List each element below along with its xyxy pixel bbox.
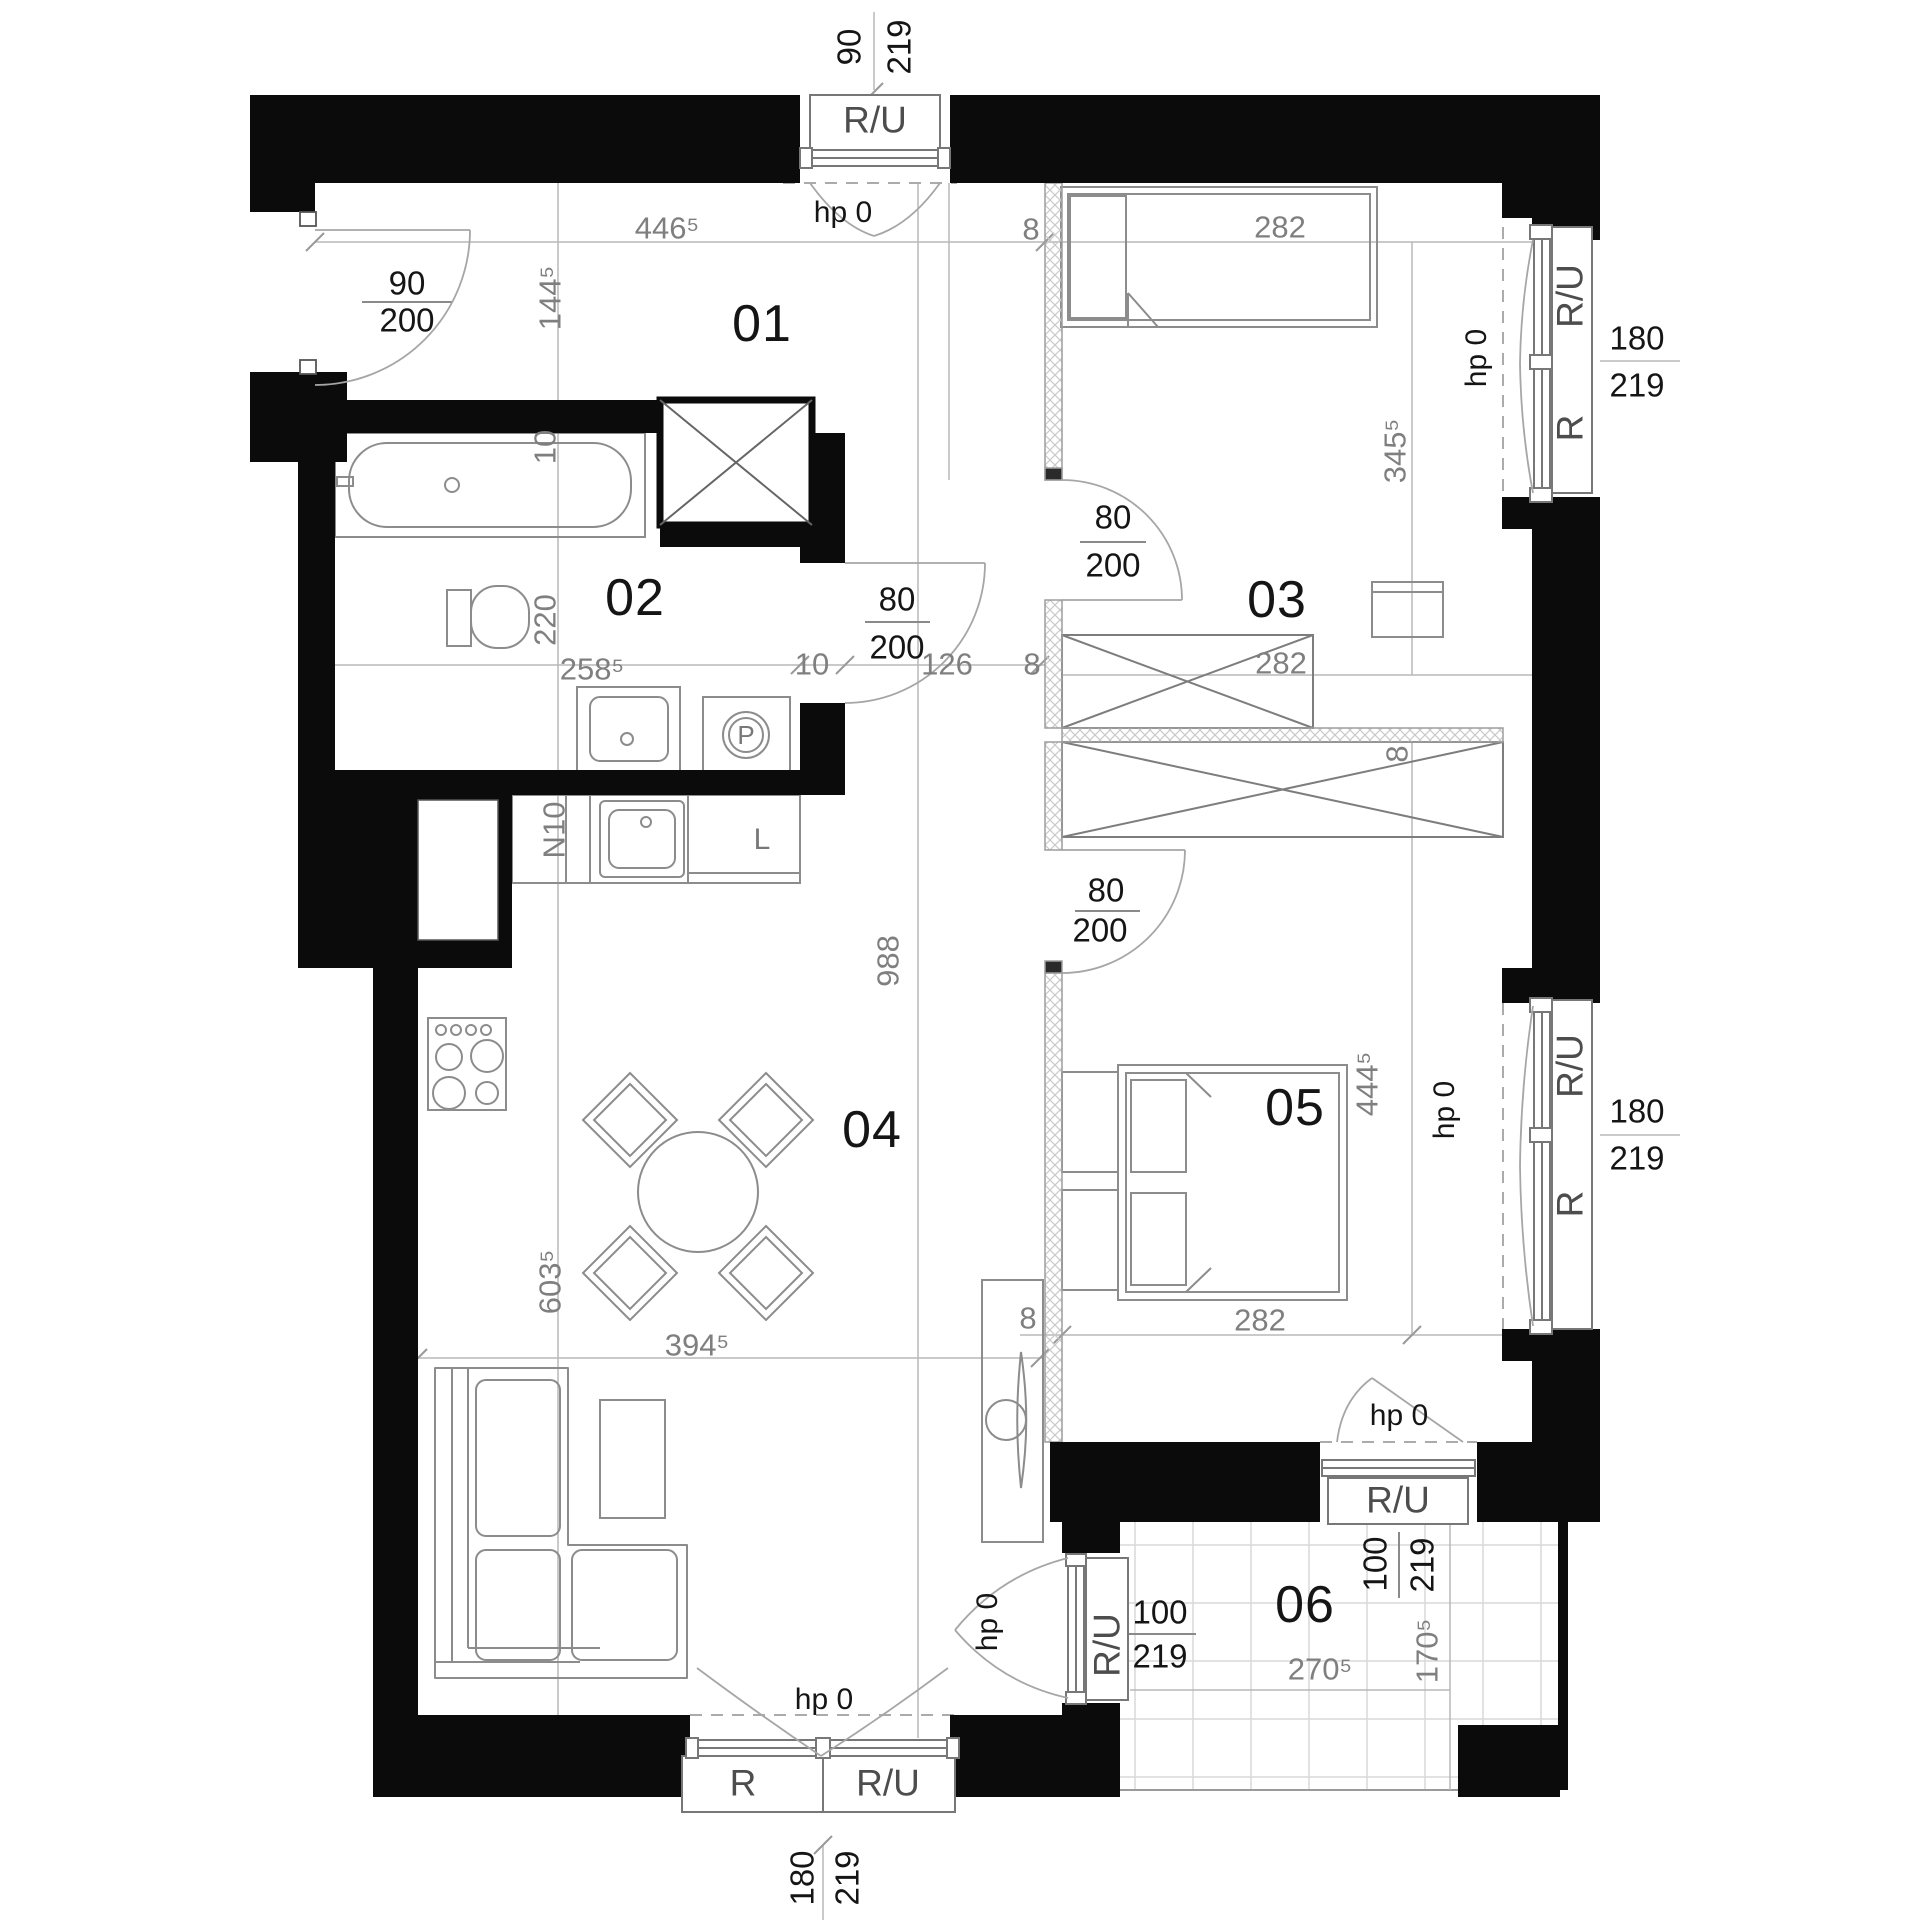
size-door03-200: 200 xyxy=(1085,549,1140,582)
wall-room56-right xyxy=(1477,1442,1532,1522)
wall-terrace-left-top xyxy=(1062,1483,1120,1553)
stove xyxy=(428,1018,506,1110)
wall-terrace-left-bottom xyxy=(1062,1703,1120,1797)
wall-bottom-left xyxy=(373,1715,690,1797)
size-botwin-219: 219 xyxy=(831,1850,864,1905)
toilet xyxy=(447,586,529,648)
wall-top-right xyxy=(950,95,1600,183)
win-right2-ru: R/U xyxy=(1552,1034,1589,1098)
hp-door56: hp 0 xyxy=(1370,1401,1428,1431)
size-entry-200: 200 xyxy=(379,304,434,337)
win-right1-r: R xyxy=(1552,415,1589,442)
wall-win1-nub-top xyxy=(1502,183,1532,218)
wall-bath-right-lower xyxy=(800,703,845,795)
room-04-label: 04 xyxy=(842,1104,902,1156)
size-rwin2-219: 219 xyxy=(1609,1142,1664,1175)
hp-door46: hp 0 xyxy=(973,1593,1003,1651)
win-top-ru: R/U xyxy=(843,102,907,139)
win-bottom-r: R xyxy=(730,1765,757,1802)
room-02-label: 02 xyxy=(605,572,665,624)
dim-282-bed03: 282 xyxy=(1254,212,1306,243)
dim-144-5: 144⁵ xyxy=(535,266,566,331)
hp-window03: hp 0 xyxy=(1462,329,1492,387)
dim-n10: N10 xyxy=(539,802,570,859)
size-topwin-219: 219 xyxy=(883,19,916,74)
wall-bath-bottom xyxy=(335,770,800,795)
size-door46-219: 219 xyxy=(1132,1640,1187,1673)
entry-door xyxy=(300,212,470,385)
dim-603-5: 603⁵ xyxy=(535,1250,566,1315)
wardrobe-room05 xyxy=(1062,742,1503,837)
dim-988: 988 xyxy=(873,935,904,987)
dim-282-bed05: 282 xyxy=(1234,1305,1286,1336)
dim-270-5: 270⁵ xyxy=(1288,1654,1353,1685)
win-right2-r: R xyxy=(1552,1191,1589,1218)
coffee-table xyxy=(600,1400,665,1518)
size-entry-90: 90 xyxy=(389,267,426,300)
dim-345-5: 345⁵ xyxy=(1380,419,1411,484)
dim-444-5: 444⁵ xyxy=(1352,1052,1383,1117)
hp-top-window: hp 0 xyxy=(814,198,872,228)
dim-8-bed05: 8 xyxy=(1019,1303,1036,1334)
wall-bath-top xyxy=(315,400,660,433)
win-bottom-ru: R/U xyxy=(856,1765,920,1802)
room-06-label: 06 xyxy=(1275,1579,1335,1631)
size-rwin2-180: 180 xyxy=(1609,1095,1664,1128)
dim-126: 126 xyxy=(921,649,973,680)
wall-top-left xyxy=(250,95,800,183)
size-botwin-180: 180 xyxy=(786,1850,819,1905)
win-door46-ru: R/U xyxy=(1089,1613,1126,1677)
dining-table xyxy=(583,1073,813,1320)
ventilation-shaft xyxy=(660,400,812,525)
wall-win1-nub-bottom xyxy=(1502,497,1532,529)
bathroom-sink xyxy=(577,687,680,773)
floor-plan-drawing xyxy=(0,0,1922,1922)
size-door56-219: 219 xyxy=(1406,1537,1439,1592)
floor-plan: 010203040506446⁵8282144⁵345⁵10220258⁵101… xyxy=(0,0,1922,1922)
size-rwin1-219: 219 xyxy=(1609,369,1664,402)
size-door46-100: 100 xyxy=(1132,1596,1187,1629)
dim-10-tub: 10 xyxy=(530,430,561,464)
dim-220: 220 xyxy=(530,594,561,646)
partition-walls xyxy=(1045,183,1503,1442)
wall-bottom-mid xyxy=(950,1715,1062,1797)
wall-right-mid xyxy=(1532,497,1600,1003)
size-door05-80: 80 xyxy=(1088,874,1125,907)
room-03-label: 03 xyxy=(1247,574,1307,626)
size-bathdoor-80: 80 xyxy=(879,583,916,616)
dim-394-5: 394⁵ xyxy=(665,1330,730,1361)
wall-win2-nub-top xyxy=(1502,968,1532,1003)
wall-living-left xyxy=(373,968,418,1715)
dim-10-bath: 10 xyxy=(795,649,829,680)
dim-170-5: 170⁵ xyxy=(1412,1619,1443,1684)
dimension-ticks xyxy=(306,83,1421,1854)
size-bathdoor-200: 200 xyxy=(869,631,924,664)
duct-niche xyxy=(418,800,498,940)
hp-window05: hp 0 xyxy=(1430,1081,1460,1139)
wall-win2-nub-bottom xyxy=(1502,1329,1532,1361)
dim-446-5: 446⁵ xyxy=(635,213,700,244)
dim-282-wardrobe: 282 xyxy=(1255,648,1307,679)
windows xyxy=(682,95,1592,1812)
size-rwin1-180: 180 xyxy=(1609,322,1664,355)
label-washer-p: P xyxy=(737,722,754,748)
wall-left-upper xyxy=(250,95,315,212)
wall-bath-left xyxy=(298,462,335,795)
room-05-label: 05 xyxy=(1265,1082,1325,1134)
win-right1-ru: R/U xyxy=(1552,264,1589,328)
dim-8-top: 8 xyxy=(1022,214,1039,245)
desk-room03 xyxy=(1372,582,1443,637)
hp-bottom-window: hp 0 xyxy=(795,1685,853,1715)
wall-right-low xyxy=(1532,1329,1600,1444)
size-topwin-90: 90 xyxy=(833,29,866,66)
room-01-label: 01 xyxy=(732,298,792,350)
sofa xyxy=(435,1368,687,1678)
size-door05-200: 200 xyxy=(1072,914,1127,947)
wall-terrace-pillar xyxy=(1458,1725,1560,1797)
dim-258-5: 258⁵ xyxy=(560,654,625,685)
dim-8-mid: 8 xyxy=(1023,649,1040,680)
win-door56-ru: R/U xyxy=(1366,1482,1430,1519)
label-fridge-l: L xyxy=(754,825,771,855)
size-door03-80: 80 xyxy=(1095,501,1132,534)
size-door56-100: 100 xyxy=(1359,1536,1392,1591)
bathtub xyxy=(335,433,645,537)
bed-room03 xyxy=(1061,187,1377,327)
dim-8-wardrobe: 8 xyxy=(1382,745,1413,762)
